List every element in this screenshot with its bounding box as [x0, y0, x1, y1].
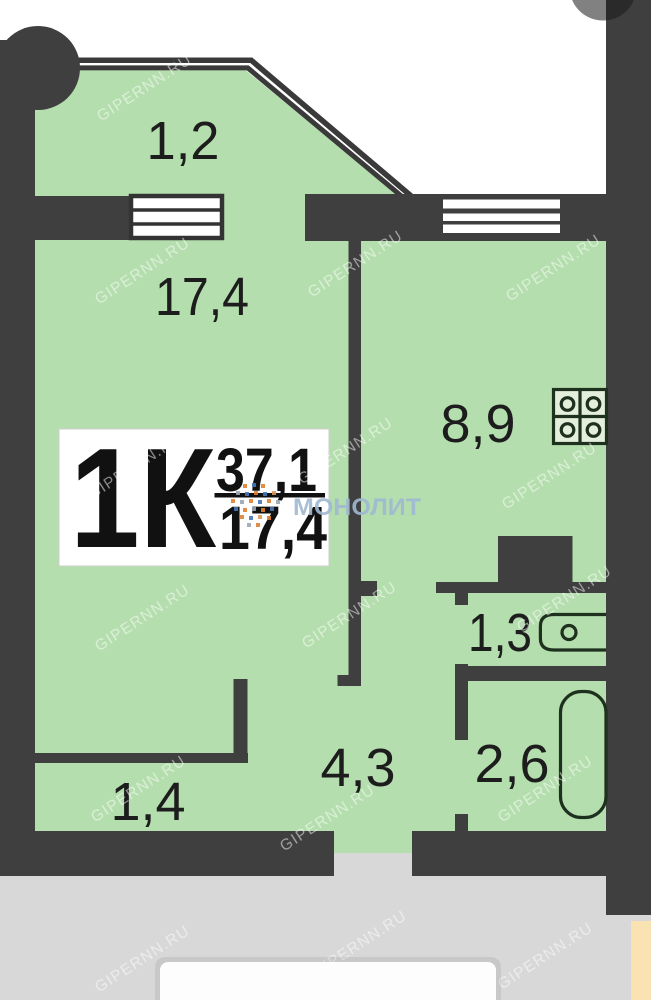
svg-text:8,9: 8,9	[440, 394, 515, 454]
svg-text:17,4: 17,4	[155, 267, 249, 327]
svg-text:1,2: 1,2	[147, 111, 220, 171]
svg-text:МОНОЛИТ: МОНОЛИТ	[293, 494, 421, 521]
